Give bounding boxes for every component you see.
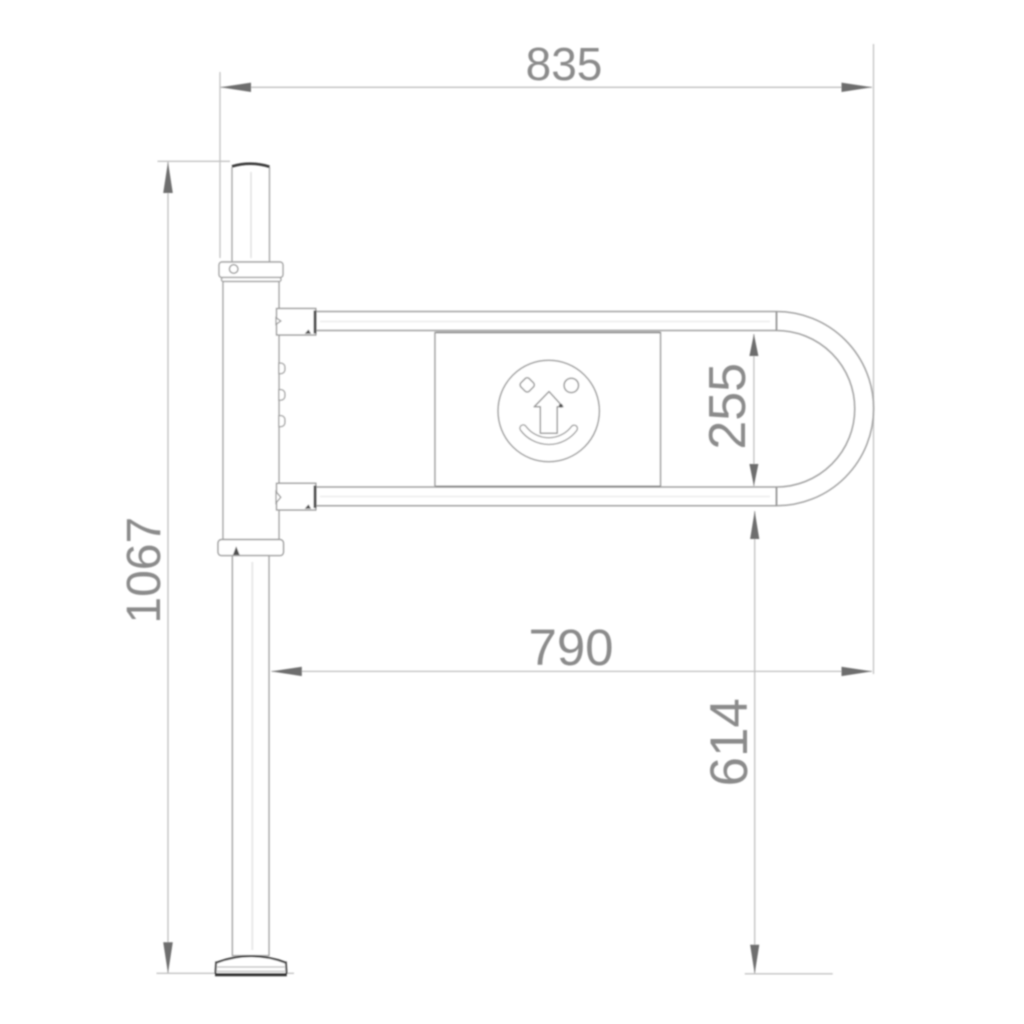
svg-text:1067: 1067 — [118, 517, 171, 624]
svg-text:614: 614 — [700, 698, 759, 786]
svg-text:835: 835 — [526, 38, 603, 90]
svg-text:255: 255 — [699, 363, 757, 450]
svg-text:790: 790 — [528, 619, 613, 676]
